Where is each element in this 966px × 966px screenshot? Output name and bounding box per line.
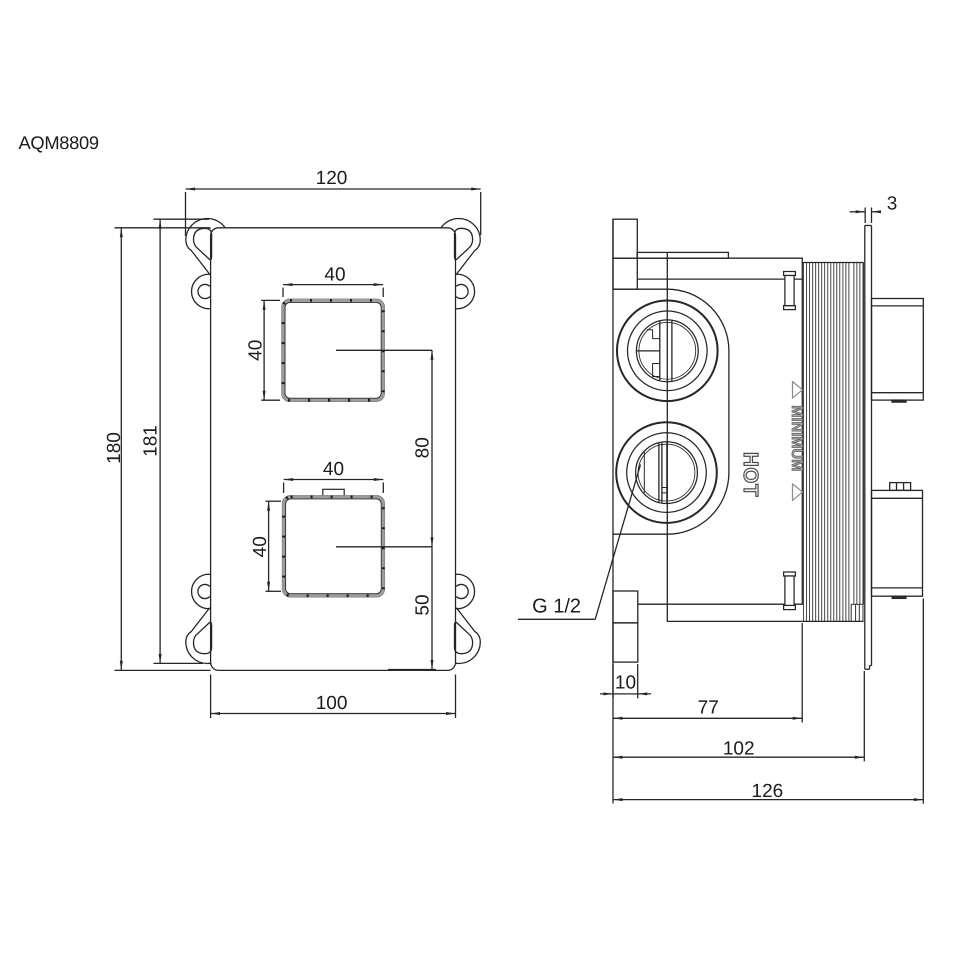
svg-text:50: 50 (413, 594, 434, 615)
svg-text:102: 102 (723, 738, 755, 759)
svg-text:77: 77 (698, 698, 719, 719)
svg-text:100: 100 (316, 693, 348, 714)
svg-text:126: 126 (752, 781, 784, 802)
svg-text:40: 40 (245, 340, 266, 361)
svg-text:10: 10 (615, 672, 636, 693)
svg-text:HOT: HOT (739, 452, 762, 497)
svg-text:181: 181 (140, 425, 161, 457)
svg-text:80: 80 (413, 437, 434, 458)
svg-text:180: 180 (104, 432, 125, 464)
svg-text:120: 120 (316, 168, 348, 189)
svg-text:G 1/2: G 1/2 (532, 596, 581, 618)
svg-text:MINIMUM: MINIMUM (788, 405, 805, 471)
svg-text:40: 40 (323, 459, 344, 480)
svg-text:AQM8809: AQM8809 (19, 132, 99, 153)
svg-text:40: 40 (250, 536, 271, 557)
svg-text:40: 40 (324, 264, 345, 285)
svg-text:3: 3 (887, 194, 898, 215)
